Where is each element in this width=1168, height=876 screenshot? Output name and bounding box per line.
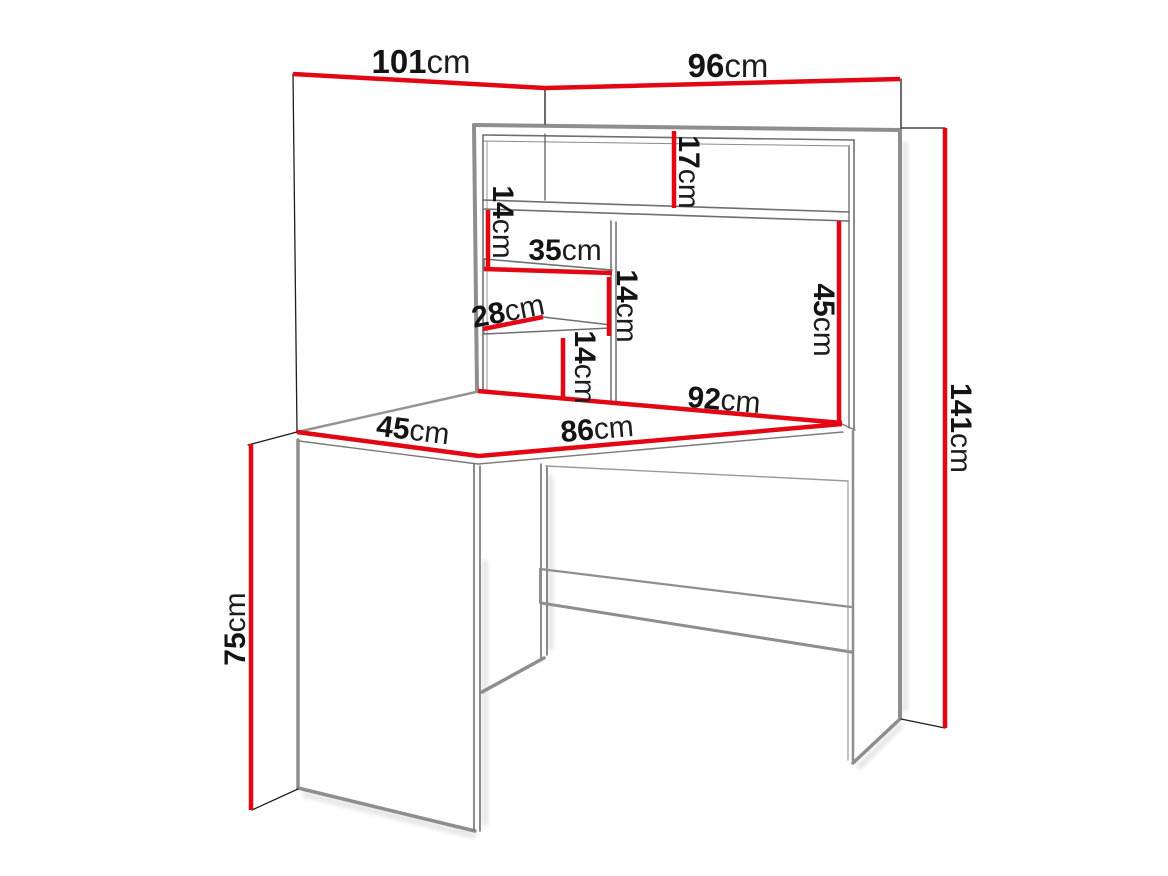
dim-label-75cm: 75cm	[219, 592, 252, 665]
dim-label-28cm: 28cm	[469, 288, 547, 334]
diagram-canvas: 101cm 96cm 17cm 14cm 35cm 14cm 28cm 14cm…	[0, 0, 1168, 876]
dim-line-desktop-back	[478, 391, 842, 423]
dim-label-45cm-hutch: 45cm	[808, 283, 841, 356]
dim-label-35cm: 35cm	[528, 234, 601, 267]
dim-label-86cm: 86cm	[559, 409, 635, 448]
rail-top-edge	[540, 569, 851, 607]
right-panel-bottom-edge	[853, 719, 900, 763]
dim-label-101cm: 101cm	[371, 43, 470, 80]
dim-label-14cm-top: 14cm	[487, 185, 520, 258]
hutch-inner-top-2	[483, 141, 849, 146]
knee-space-back-edge	[546, 466, 848, 481]
left-panel-bottom-edge	[298, 788, 475, 831]
desk-body	[297, 392, 900, 831]
dim-label-14cm-middle: 14cm	[611, 269, 644, 342]
hutch-left-edge	[474, 125, 477, 391]
dim-label-14cm-bottom: 14cm	[569, 330, 602, 403]
furniture-dimension-diagram: 101cm 96cm 17cm 14cm 35cm 14cm 28cm 14cm…	[0, 0, 1168, 876]
connector-141-bottom	[901, 719, 945, 728]
dim-line-shelf-35	[484, 269, 612, 273]
dim-label-96cm: 96cm	[688, 47, 769, 84]
corner-panel-floor-edge	[482, 658, 544, 692]
dim-label-92cm: 92cm	[686, 380, 762, 419]
hutch-top-edge	[474, 125, 900, 130]
shelf-28-back	[543, 317, 611, 325]
connector-75-bottom	[252, 789, 298, 810]
left-wall-edge	[293, 74, 297, 432]
connector-75-top	[248, 432, 297, 445]
dim-label-141cm: 141cm	[945, 383, 978, 473]
shadow-bottom-right	[858, 724, 902, 768]
rail-bottom-edge	[541, 603, 851, 652]
shadow-lines	[303, 142, 905, 836]
dim-label-17cm: 17cm	[673, 135, 706, 208]
hutch-inner-top	[483, 135, 854, 140]
shadow-bottom-left	[303, 794, 476, 836]
